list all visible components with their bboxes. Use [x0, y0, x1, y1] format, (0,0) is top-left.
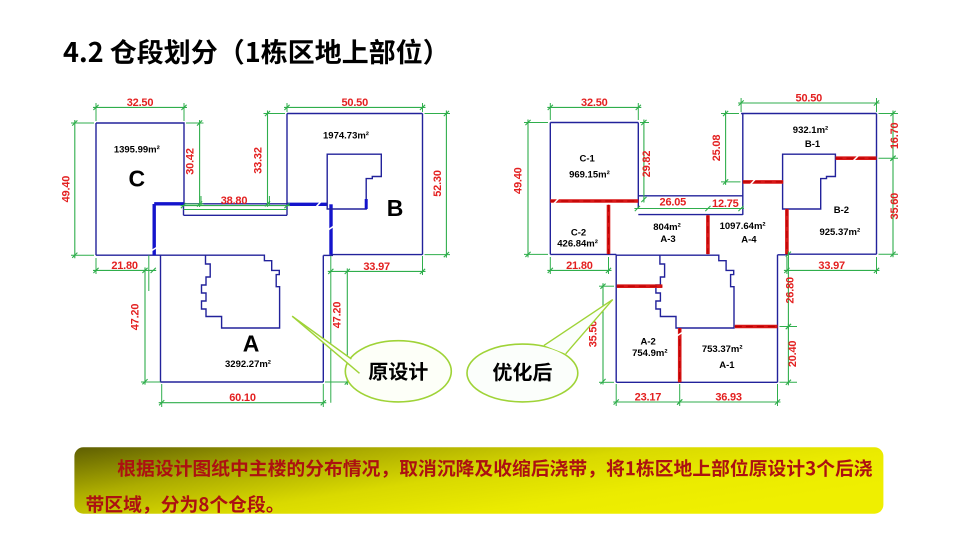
svg-text:C: C [128, 165, 145, 191]
svg-text:A-4: A-4 [741, 235, 757, 246]
svg-text:36.93: 36.93 [715, 391, 742, 403]
svg-text:1097.64m²: 1097.64m² [720, 221, 766, 232]
svg-text:804m²: 804m² [653, 222, 680, 233]
svg-text:33.97: 33.97 [818, 260, 845, 272]
svg-text:33.97: 33.97 [363, 261, 390, 273]
svg-text:B-2: B-2 [834, 205, 849, 216]
svg-text:B: B [387, 195, 404, 221]
svg-text:30.42: 30.42 [185, 148, 197, 175]
svg-text:47.20: 47.20 [332, 302, 344, 329]
svg-text:C-2: C-2 [571, 228, 586, 239]
svg-text:32.50: 32.50 [127, 97, 154, 109]
svg-text:1974.73m²: 1974.73m² [323, 130, 369, 141]
svg-text:753.37m²: 753.37m² [702, 344, 743, 355]
svg-text:C-1: C-1 [580, 154, 596, 165]
svg-text:50.50: 50.50 [341, 97, 368, 109]
svg-text:754.9m²: 754.9m² [632, 348, 667, 359]
svg-text:A: A [243, 330, 260, 356]
svg-text:25.08: 25.08 [711, 135, 723, 162]
svg-text:A-2: A-2 [641, 336, 656, 347]
svg-text:20.40: 20.40 [787, 341, 799, 368]
svg-text:A-3: A-3 [660, 234, 675, 245]
svg-text:426.84m²: 426.84m² [557, 239, 598, 250]
svg-text:21.80: 21.80 [566, 260, 593, 272]
svg-text:47.20: 47.20 [130, 304, 142, 331]
svg-text:925.37m²: 925.37m² [819, 227, 860, 238]
svg-text:16.70: 16.70 [889, 123, 901, 150]
svg-text:23.17: 23.17 [635, 391, 662, 403]
svg-text:969.15m²: 969.15m² [569, 170, 610, 181]
svg-text:1395.99m²: 1395.99m² [114, 145, 160, 156]
svg-text:49.40: 49.40 [513, 167, 525, 194]
svg-text:52.30: 52.30 [432, 170, 444, 197]
svg-text:49.40: 49.40 [61, 176, 73, 203]
svg-text:50.50: 50.50 [796, 92, 823, 104]
svg-text:35.60: 35.60 [889, 193, 901, 220]
svg-text:26.05: 26.05 [660, 196, 687, 208]
svg-text:12.75: 12.75 [712, 198, 739, 210]
svg-text:26.80: 26.80 [785, 277, 797, 304]
svg-text:A-1: A-1 [719, 360, 735, 371]
svg-text:33.32: 33.32 [253, 147, 265, 174]
svg-text:32.50: 32.50 [581, 97, 608, 109]
svg-text:21.80: 21.80 [111, 260, 138, 272]
svg-text:3292.27m²: 3292.27m² [225, 359, 271, 370]
svg-text:60.10: 60.10 [229, 392, 256, 404]
svg-text:932.1m²: 932.1m² [793, 125, 828, 136]
svg-text:38.80: 38.80 [221, 195, 248, 207]
svg-text:B-1: B-1 [805, 139, 821, 150]
svg-text:29.82: 29.82 [641, 151, 653, 178]
